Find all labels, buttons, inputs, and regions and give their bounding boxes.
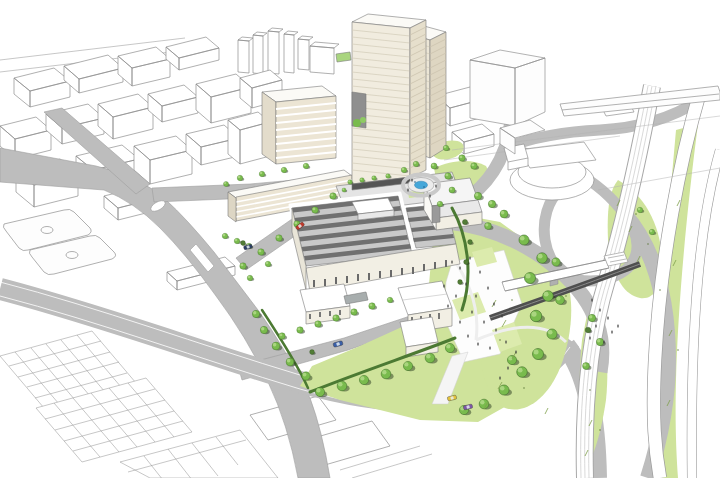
person [443,285,444,288]
person [455,295,456,298]
tree [223,181,229,186]
tall-slab [470,50,545,126]
site-buildings [228,14,482,357]
masterplan-rendering: Aerial masterplan illustration: white ma… [0,0,720,478]
city-block [64,55,123,93]
sports-courts [3,209,115,274]
west-face [262,92,276,164]
fountain-water [415,181,428,189]
glass-link [344,292,368,304]
person [617,325,618,328]
tree [281,167,288,173]
city-block [14,68,70,107]
midrise-office [262,86,336,164]
dot [565,295,566,296]
city-slab [310,42,339,74]
person [447,305,448,308]
dot [511,299,512,300]
notch-tree [360,117,366,123]
person [465,283,466,286]
person [611,331,612,334]
person [603,341,604,344]
dot [499,339,500,340]
city-tower-cluster [238,28,339,74]
person [411,179,412,182]
terrace-green [336,52,351,62]
tree [247,275,254,281]
person [477,343,478,346]
person [505,341,506,344]
city-tower [268,28,283,74]
person [589,337,590,340]
city-tower [284,31,298,73]
person [607,317,608,320]
person [489,347,490,350]
dot [647,243,648,244]
person [479,271,480,274]
fountain-jet [414,181,416,183]
person [483,321,484,324]
tree [519,235,532,246]
dot [523,387,524,388]
outer-road [692,150,720,478]
person [471,311,472,314]
tree [552,258,563,267]
city-block [98,94,153,139]
tree [272,342,282,350]
dot [659,289,660,290]
person [507,367,508,370]
dot [677,349,678,350]
dot [589,389,590,390]
tree [252,310,261,318]
tree [351,309,359,316]
tree [222,233,229,239]
tree [369,303,377,310]
tree [387,297,394,303]
dot [599,429,600,430]
person [459,321,460,324]
bush [241,241,247,246]
tree [234,238,241,244]
small-box-roof [400,317,438,347]
person [591,299,592,302]
person [429,195,430,198]
chimney [432,205,440,223]
city-block [118,47,170,86]
person [467,335,468,338]
tree [265,261,272,267]
person [501,315,502,318]
notch-tree [353,119,361,127]
person [499,377,500,380]
city-block [166,37,219,70]
person [469,257,470,260]
dot [635,213,636,214]
person [487,287,488,290]
person [459,267,460,270]
person [595,325,596,328]
person [407,189,408,192]
tree [259,171,266,177]
scene-svg [0,0,720,478]
fountain-plaza [403,175,439,196]
fountain-jet [423,186,425,188]
city-tower [238,37,253,73]
tree [459,155,467,162]
person [515,351,516,354]
landmark-tower [336,14,446,186]
city-block [148,85,198,122]
person [599,309,600,312]
tree [431,163,439,169]
tree [279,333,287,340]
tree [488,200,497,208]
city-tower [253,32,267,74]
person [435,185,436,188]
person [475,295,476,298]
tree [297,327,305,334]
person [451,261,452,264]
person [493,303,494,306]
arena-roof [518,142,596,168]
tree [303,163,310,169]
city-block [134,136,192,184]
tree [237,175,244,181]
tree [500,210,510,218]
person [495,329,496,332]
